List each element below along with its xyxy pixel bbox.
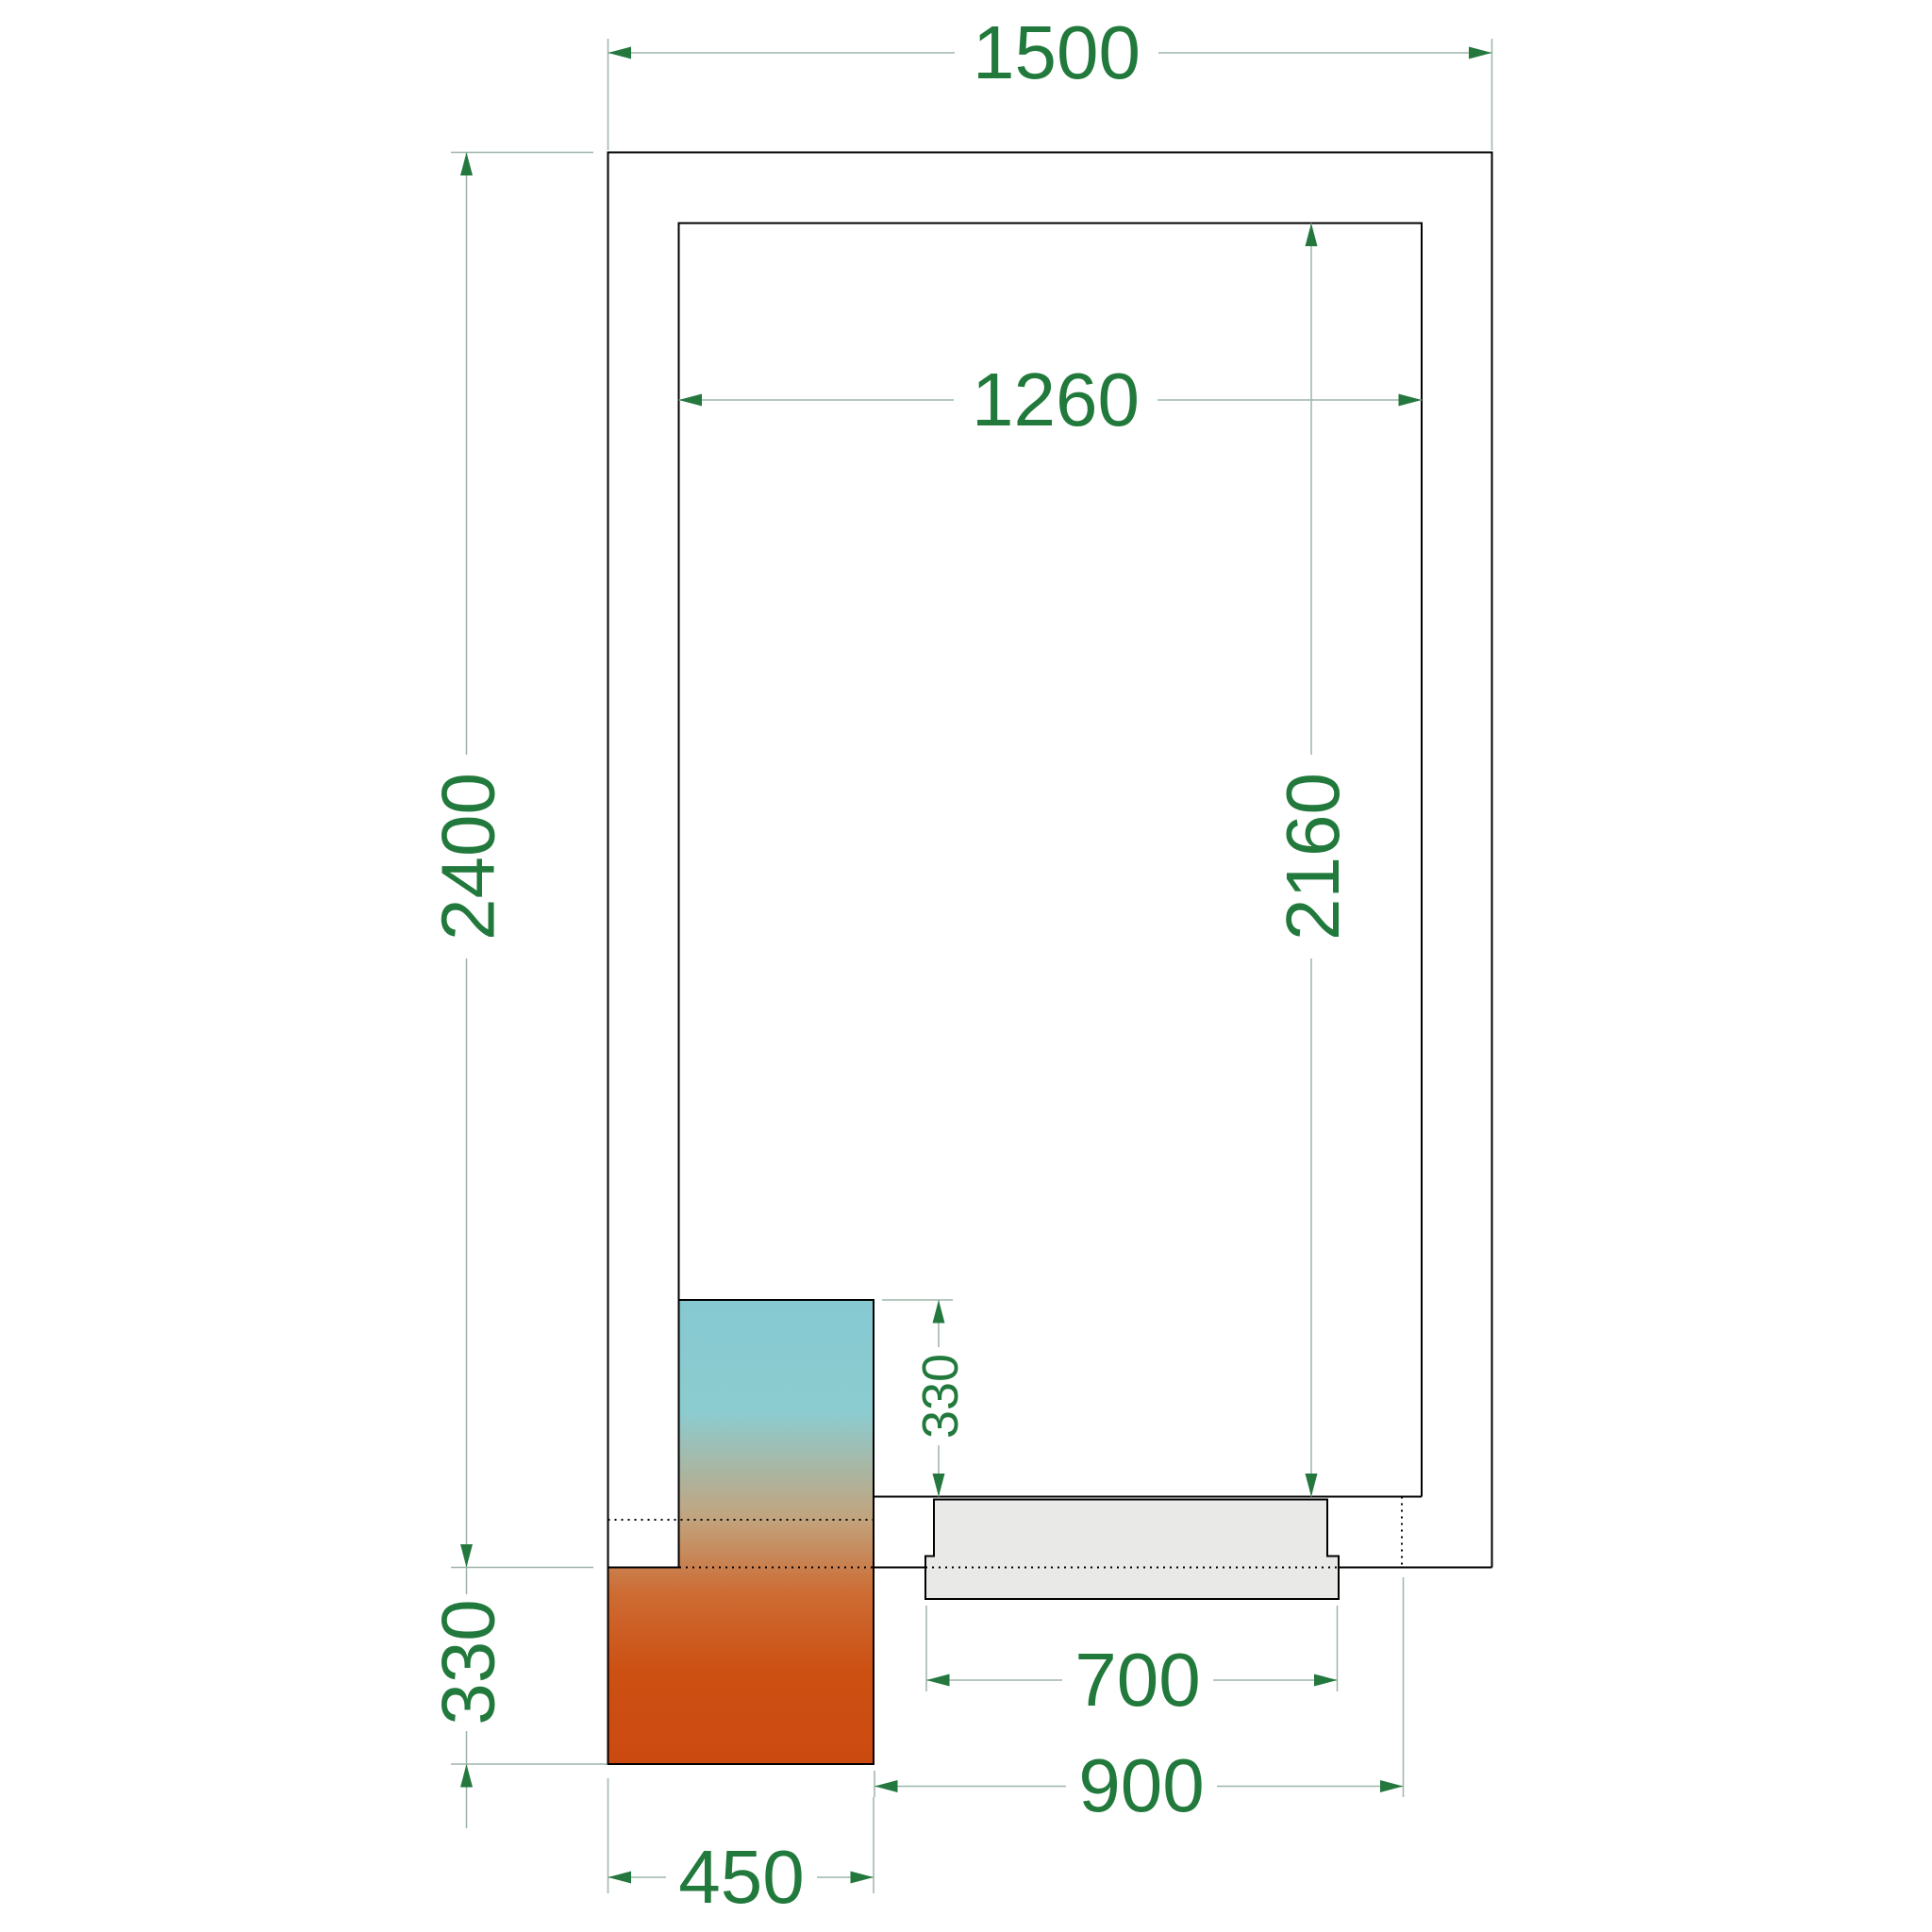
svg-text:2400: 2400 [426, 773, 510, 941]
svg-text:450: 450 [678, 1835, 804, 1919]
svg-text:1500: 1500 [973, 10, 1141, 94]
svg-text:2160: 2160 [1271, 773, 1355, 941]
svg-text:1260: 1260 [972, 358, 1140, 441]
svg-text:330: 330 [426, 1599, 510, 1724]
svg-text:700: 700 [1074, 1638, 1200, 1722]
svg-text:330: 330 [912, 1354, 969, 1439]
svg-text:900: 900 [1078, 1743, 1204, 1827]
